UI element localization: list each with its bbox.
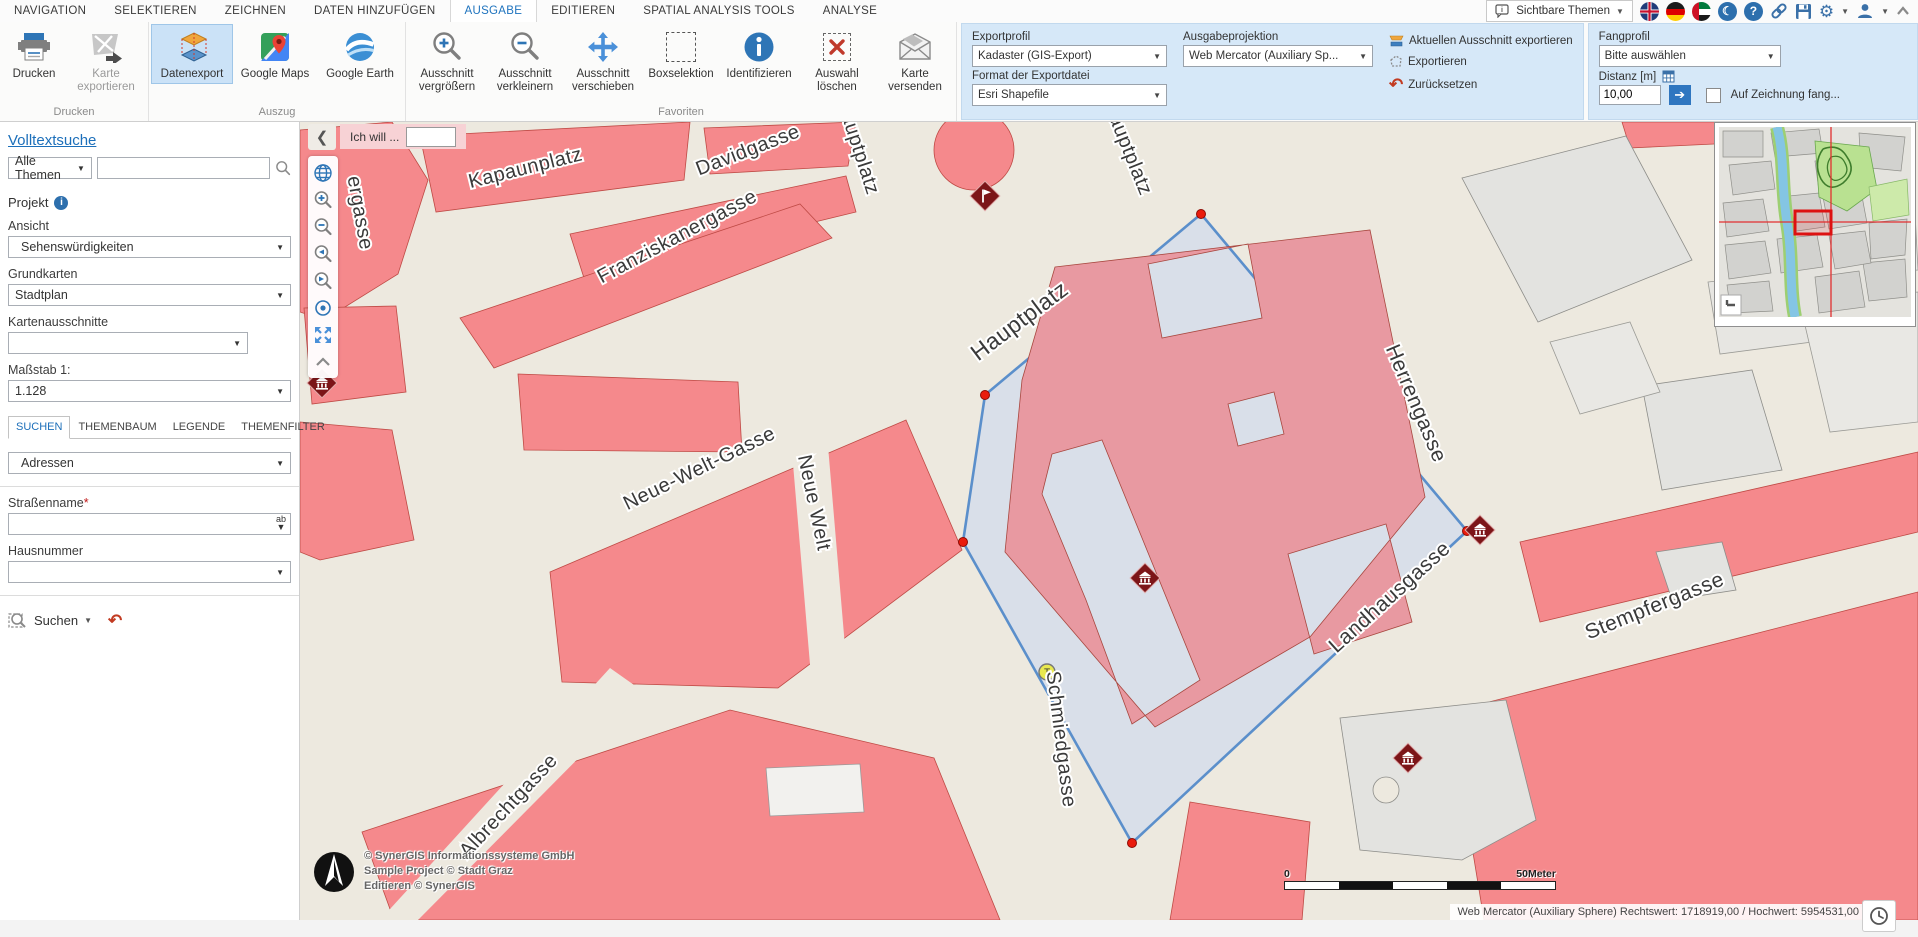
export-panel: Exportprofil Kadaster (GIS-Export)▼ Form… (961, 23, 1584, 120)
menu-bar: NAVIGATION SELEKTIEREN ZEICHNEN DATEN HI… (0, 0, 1918, 22)
overview-map[interactable] (1714, 122, 1916, 327)
zoom-in-extent-button[interactable]: Ausschnitt vergrößern (408, 24, 486, 97)
map-credits: © SynerGIS Informationssysteme GmbH Samp… (312, 849, 574, 894)
grid-calculator-icon[interactable] (1662, 70, 1675, 83)
tab-daten-hinzufuegen[interactable]: DATEN HINZUFÜGEN (300, 0, 450, 22)
full-extent-icon[interactable] (310, 322, 336, 347)
chevron-down-icon: ▼ (1616, 7, 1624, 16)
clear-selection-label: Auswahl löschen (801, 68, 873, 94)
google-earth-icon (343, 29, 377, 65)
sidebar-tabs: SUCHEN THEMENBAUM LEGENDE THEMENFILTER (8, 416, 291, 439)
tab-zeichnen[interactable]: ZEICHNEN (211, 0, 300, 22)
data-export-button[interactable]: Datenexport (151, 24, 233, 84)
themes-select[interactable]: Alle Themen▼ (8, 157, 92, 179)
adressen-select[interactable]: Adressen▼ (8, 452, 291, 474)
next-extent-icon[interactable] (310, 268, 336, 293)
chevron-down-icon: ▼ (77, 164, 85, 173)
suchen-label: Suchen (34, 613, 78, 628)
kartenausschnitte-label: Kartenausschnitte (8, 315, 291, 329)
speech-bubble-info-icon: i (1495, 4, 1510, 18)
north-arrow-icon (312, 850, 356, 894)
print-button[interactable]: Drucken (2, 24, 66, 84)
pan-extent-button[interactable]: Ausschnitt verschieben (564, 24, 642, 97)
map-canvas[interactable]: T KapaunplatzDavidgasseFranziskanergasse… (300, 122, 1918, 920)
required-asterisk: * (84, 496, 89, 510)
credit-line: Editieren © SynerGIS (364, 879, 574, 894)
history-clock-button[interactable] (1862, 900, 1896, 932)
ansicht-label: Ansicht (8, 219, 291, 233)
clear-selection-icon (823, 29, 851, 65)
collapse-ribbon-icon[interactable] (1896, 5, 1910, 17)
strassenname-label: Straßenname (8, 496, 84, 510)
adressen-value: Adressen (15, 456, 74, 470)
ich-will-label: Ich will ... (350, 130, 399, 144)
kartenausschnitte-select[interactable]: ▼ (8, 332, 248, 354)
massstab-select[interactable]: 1.128▼ (8, 380, 291, 402)
info-circle-icon (743, 29, 775, 65)
exportprofil-value: Kadaster (GIS-Export) (978, 50, 1092, 62)
museum-marker-icon[interactable] (1465, 515, 1495, 545)
zoom-in-icon (430, 29, 464, 65)
massstab-value: 1.128 (15, 384, 46, 398)
bottom-strip (0, 920, 1918, 937)
link-icon[interactable] (1770, 2, 1788, 20)
tab-themenfilter[interactable]: THEMENFILTER (233, 416, 333, 438)
chevron-down-icon: ▼ (1767, 52, 1775, 61)
ich-will-input[interactable] (406, 127, 456, 147)
pan-arrows-icon (586, 29, 620, 65)
send-map-button[interactable]: Karte versenden (876, 24, 954, 97)
svg-text:i: i (1501, 7, 1503, 14)
identify-button[interactable]: Identifizieren (720, 24, 798, 84)
themes-value: Alle Themen (15, 154, 77, 182)
ribbon: Drucken Karte exportieren Drucken Date (0, 22, 1918, 122)
chevron-down-icon: ▼ (1359, 52, 1367, 61)
help-icon[interactable]: ? (1744, 2, 1763, 21)
ribbon-group-auszug: Datenexport Google Maps Google Earth (149, 22, 406, 121)
search-icon[interactable] (275, 159, 291, 177)
reset-label: Zurücksetzen (1408, 79, 1477, 91)
distanz-label: Distanz [m] (1599, 71, 1657, 83)
user-icon[interactable] (1856, 2, 1874, 20)
projektion-label: Ausgabeprojektion (1183, 31, 1373, 43)
fangprofil-label: Fangprofil (1599, 31, 1907, 43)
format-select[interactable]: Esri Shapefile▼ (972, 84, 1167, 106)
strassenname-input[interactable] (8, 513, 291, 535)
scale-min-label: 0 (1284, 868, 1290, 880)
globe-overview-icon[interactable] (310, 160, 336, 185)
send-map-label: Karte versenden (879, 68, 951, 94)
chevron-down-icon: ▼ (276, 387, 284, 396)
sort-ab-icon[interactable]: ab▼ (276, 515, 286, 531)
box-selection-label: Boxselektion (648, 68, 713, 81)
previous-extent-icon[interactable] (310, 241, 336, 266)
zoom-in-tool-icon[interactable] (310, 187, 336, 212)
format-value: Esri Shapefile (978, 89, 1049, 101)
box-selection-button[interactable]: Boxselektion (642, 24, 720, 84)
fangprofil-select[interactable]: Bitte auswählen▼ (1599, 45, 1781, 67)
zoom-in-label: Ausschnitt vergrößern (411, 68, 483, 94)
format-label: Format der Exportdatei (972, 70, 1167, 82)
exportprofil-select[interactable]: Kadaster (GIS-Export)▼ (972, 45, 1167, 67)
data-export-label: Datenexport (161, 68, 224, 81)
reset-search-icon[interactable]: ↶ (108, 612, 122, 629)
tab-editieren[interactable]: EDITIEREN (537, 0, 629, 22)
google-earth-button[interactable]: Google Earth (317, 24, 403, 84)
mini-map-icon (1389, 34, 1404, 47)
tab-themenbaum[interactable]: THEMENBAUM (70, 416, 164, 438)
save-icon[interactable] (1795, 3, 1812, 20)
tab-selektieren[interactable]: SELEKTIEREN (100, 0, 211, 22)
fulltext-search-title[interactable]: Volltextsuche (8, 132, 291, 149)
street-label: Hauptplatz (1099, 122, 1157, 199)
export-map-button[interactable]: Karte exportieren (66, 24, 146, 97)
ribbon-group-favoriten: Ausschnitt vergrößern Ausschnitt verklei… (406, 22, 957, 121)
tab-spatial-analysis-tools[interactable]: SPATIAL ANALYSIS TOOLS (629, 0, 808, 22)
language-arabic-flag-icon[interactable] (1692, 2, 1711, 21)
visible-themes-label: Sichtbare Themen (1516, 5, 1610, 17)
map-viewport[interactable]: T KapaunplatzDavidgasseFranziskanergasse… (300, 122, 1918, 920)
google-earth-label: Google Earth (326, 68, 394, 81)
fangprofil-value: Bitte auswählen (1605, 50, 1686, 62)
clear-selection-button[interactable]: Auswahl löschen (798, 24, 876, 97)
search-in-box-icon (8, 610, 28, 630)
chevron-down-icon: ▼ (233, 339, 241, 348)
projektion-value: Web Mercator (Auxiliary Sp... (1189, 50, 1338, 62)
gear-caret-icon: ▼ (1841, 7, 1849, 16)
map-export-icon (88, 29, 124, 65)
google-maps-label: Google Maps (241, 68, 309, 81)
snap-drawing-checkbox[interactable] (1706, 88, 1721, 103)
chevron-down-icon: ▼ (276, 568, 284, 577)
center-map-icon[interactable] (310, 295, 336, 320)
distanz-input[interactable] (1599, 85, 1661, 105)
chevron-down-icon: ▼ (1153, 52, 1161, 61)
user-caret-icon: ▼ (1881, 7, 1889, 16)
zoom-out-tool-icon[interactable] (310, 214, 336, 239)
tab-analyse[interactable]: ANALYSE (809, 0, 891, 22)
overview-collapse-icon[interactable] (1721, 295, 1741, 315)
zoom-out-extent-button[interactable]: Ausschnitt verkleinern (486, 24, 564, 97)
export-action[interactable]: Exportieren (1389, 55, 1573, 68)
tab-navigation[interactable]: NAVIGATION (0, 0, 100, 22)
export-current-extent-label: Aktuellen Ausschnitt exportieren (1409, 35, 1573, 47)
export-label: Exportieren (1408, 56, 1467, 68)
projektion-select[interactable]: Web Mercator (Auxiliary Sp...▼ (1183, 45, 1373, 67)
credit-line: Sample Project © Stadt Graz (364, 864, 574, 879)
printer-icon (17, 29, 51, 65)
divider (0, 595, 299, 596)
menubar-right: i Sichtbare Themen ▼ ☾ ? (1486, 0, 1918, 22)
tab-suchen[interactable]: SUCHEN (8, 416, 70, 439)
envelope-icon (897, 29, 933, 65)
sidebar: Volltextsuche Alle Themen▼ Projekt i Ans… (0, 122, 300, 920)
google-maps-button[interactable]: Google Maps (233, 24, 317, 84)
projekt-label: Projekt (8, 195, 48, 210)
map-tool-column (308, 156, 338, 378)
tab-ausgabe[interactable]: AUSGABE (450, 0, 538, 22)
collapse-tools-icon[interactable] (310, 349, 336, 374)
pan-label: Ausschnitt verschieben (567, 68, 639, 94)
group-label-favoriten: Favoriten (408, 106, 954, 121)
exportprofil-label: Exportprofil (972, 31, 1167, 43)
apply-distance-button[interactable]: ➔ (1669, 85, 1691, 105)
divider (0, 486, 299, 487)
hausnummer-label: Hausnummer (8, 544, 291, 558)
hausnummer-select[interactable]: ▼ (8, 561, 291, 583)
chevron-down-icon: ▼ (276, 291, 284, 300)
chevron-down-icon: ▼ (276, 243, 284, 252)
ansicht-value: Sehenswürdigkeiten (15, 240, 134, 254)
grundkarten-select[interactable]: Stadtplan▼ (8, 284, 291, 306)
chevron-down-icon: ▼ (1153, 91, 1161, 100)
ribbon-group-drucken: Drucken Karte exportieren Drucken (0, 22, 149, 121)
zoom-out-label: Ausschnitt verkleinern (489, 68, 561, 94)
export-current-extent-action[interactable]: Aktuellen Ausschnitt exportieren (1389, 34, 1573, 47)
dashed-polygon-icon (1389, 55, 1403, 68)
zoom-out-icon (508, 29, 542, 65)
google-maps-icon (258, 29, 292, 65)
collapse-sidebar-button[interactable]: ❮ (308, 124, 336, 150)
tab-legende[interactable]: LEGENDE (165, 416, 234, 438)
coordinate-status: Web Mercator (Auxiliary Sphere) Rechtswe… (1450, 904, 1866, 920)
scale-bar: 0 50Meter (1284, 868, 1556, 890)
scale-max-label: 50Meter (1516, 868, 1556, 880)
massstab-label: Maßstab 1: (8, 363, 291, 377)
suchen-button[interactable]: Suchen ▼ ↶ (8, 610, 291, 630)
grundkarten-label: Grundkarten (8, 267, 291, 281)
language-english-flag-icon[interactable] (1640, 2, 1659, 21)
ansicht-select[interactable]: Sehenswürdigkeiten▼ (8, 236, 291, 258)
chevron-down-icon: ▼ (276, 459, 284, 468)
extent-rectangle[interactable] (1795, 211, 1831, 234)
night-mode-icon[interactable]: ☾ (1718, 2, 1737, 21)
data-export-icon (173, 29, 211, 65)
reset-action[interactable]: ↶ Zurücksetzen (1389, 76, 1573, 93)
info-icon[interactable]: i (54, 196, 68, 210)
ich-will-box[interactable]: Ich will ... (340, 124, 466, 149)
print-label: Drucken (13, 68, 56, 81)
fulltext-search-input[interactable] (97, 157, 270, 179)
snap-drawing-label: Auf Zeichnung fang... (1731, 89, 1840, 101)
credit-line: © SynerGIS Informationssysteme GmbH (364, 849, 574, 864)
settings-gear-icon[interactable]: ⚙ (1819, 3, 1834, 20)
group-label-auszug: Auszug (151, 106, 403, 121)
visible-themes-button[interactable]: i Sichtbare Themen ▼ (1486, 0, 1633, 22)
dashed-box-icon (666, 29, 696, 65)
group-label-drucken: Drucken (2, 106, 146, 121)
language-german-flag-icon[interactable] (1666, 2, 1685, 21)
chevron-down-icon: ▼ (84, 616, 92, 625)
export-map-label: Karte exportieren (69, 68, 143, 94)
grundkarten-value: Stadtplan (15, 288, 68, 302)
snap-panel: Fangprofil Bitte auswählen▼ Distanz [m] … (1588, 23, 1918, 120)
identify-label: Identifizieren (726, 68, 791, 81)
undo-icon: ↶ (1389, 76, 1403, 93)
